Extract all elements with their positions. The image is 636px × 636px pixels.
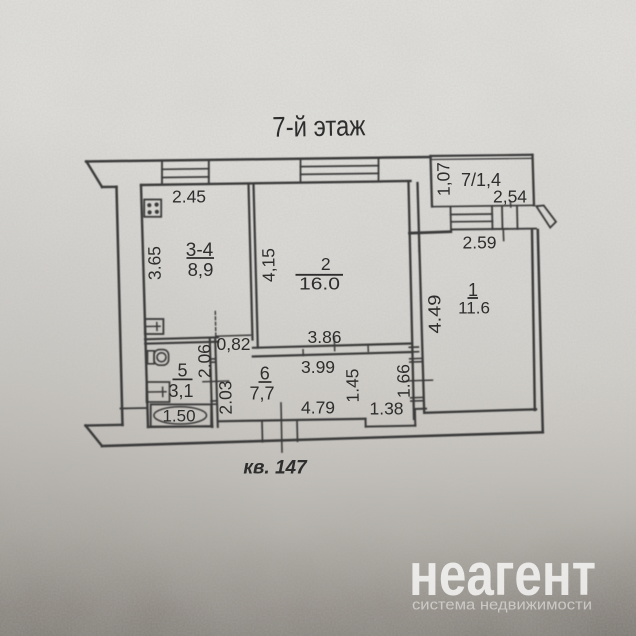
svg-text:1.66: 1.66 (393, 364, 414, 398)
svg-text:7-й этаж: 7-й этаж (272, 110, 366, 144)
svg-text:1,07: 1,07 (433, 162, 454, 196)
svg-text:1.38: 1.38 (369, 399, 403, 419)
svg-text:2,54: 2,54 (493, 187, 527, 207)
svg-text:8,9: 8,9 (188, 259, 214, 280)
svg-text:7,7: 7,7 (249, 384, 274, 404)
svg-text:1: 1 (468, 280, 478, 300)
svg-text:3.65: 3.65 (144, 246, 165, 280)
svg-text:5: 5 (177, 361, 187, 381)
svg-text:2.45: 2.45 (172, 187, 206, 207)
svg-text:2.59: 2.59 (462, 233, 496, 253)
svg-text:3.86: 3.86 (307, 327, 341, 347)
svg-text:2.03: 2.03 (215, 380, 236, 414)
svg-text:4,15: 4,15 (258, 248, 279, 282)
svg-text:0,82: 0,82 (216, 334, 250, 354)
svg-text:система недвижимости: система недвижимости (412, 598, 592, 614)
svg-text:6: 6 (260, 364, 270, 384)
svg-text:2.06: 2.06 (194, 344, 215, 378)
svg-text:16.0: 16.0 (299, 274, 340, 294)
svg-text:1.50: 1.50 (162, 407, 195, 426)
svg-text:11.6: 11.6 (458, 299, 490, 318)
svg-text:1.45: 1.45 (342, 368, 363, 402)
svg-text:4.79: 4.79 (301, 398, 335, 418)
svg-text:2: 2 (321, 254, 331, 274)
svg-text:3,1: 3,1 (168, 381, 193, 401)
svg-text:4.49: 4.49 (424, 294, 445, 333)
svg-text:3.99: 3.99 (301, 357, 335, 377)
svg-text:кв. 147: кв. 147 (243, 458, 308, 479)
